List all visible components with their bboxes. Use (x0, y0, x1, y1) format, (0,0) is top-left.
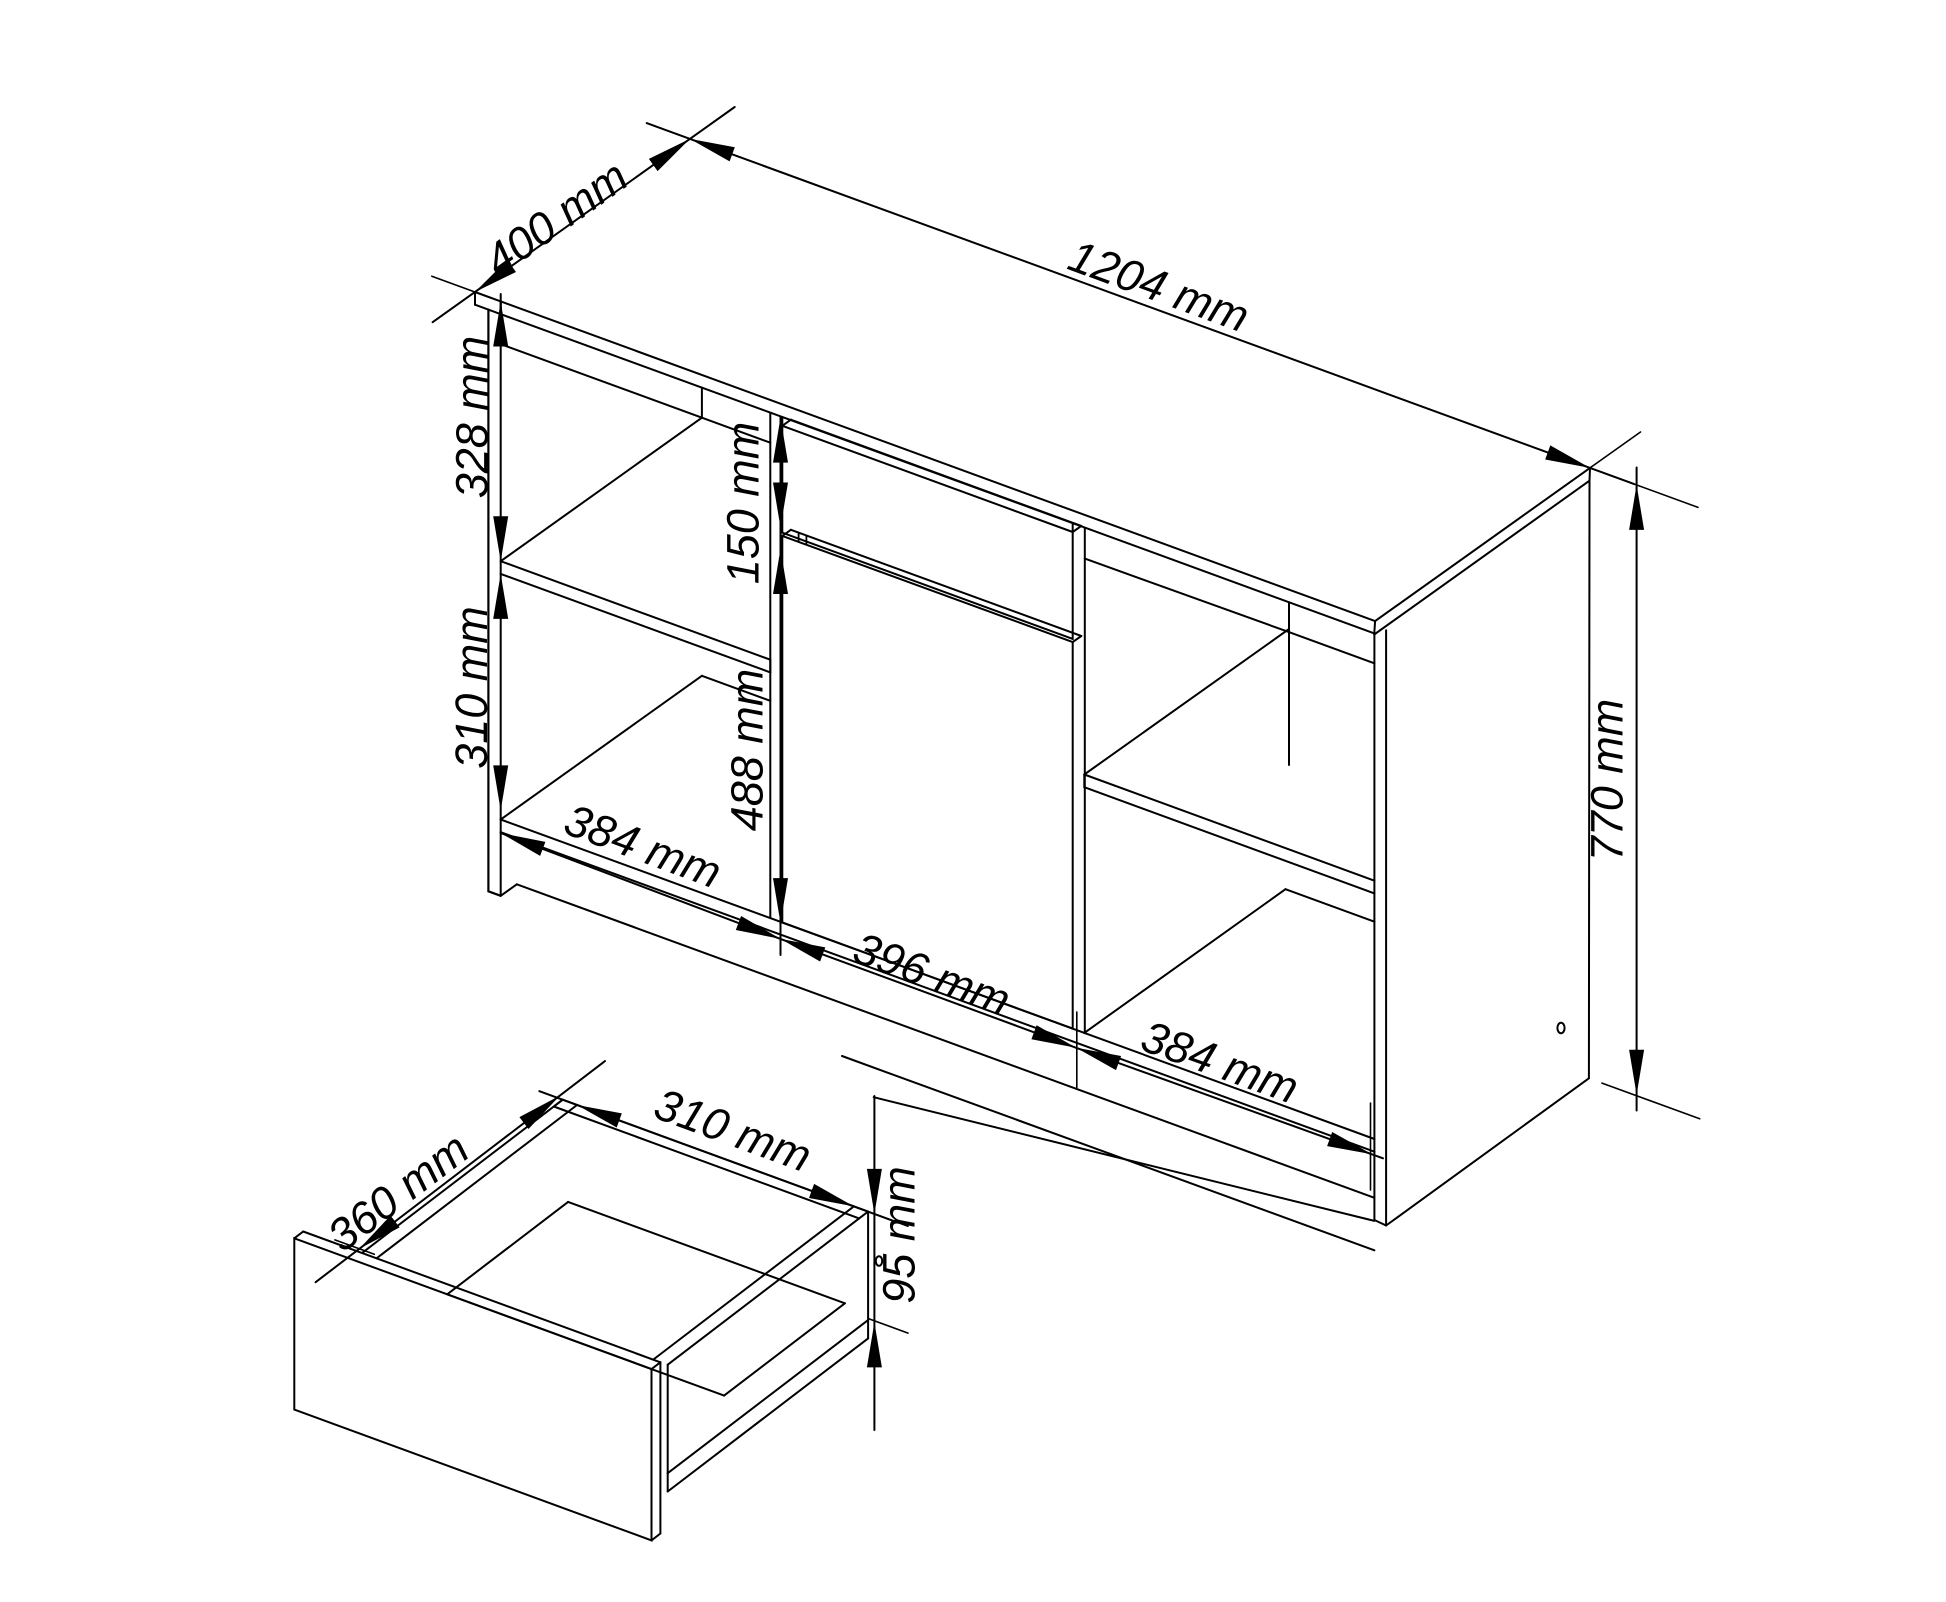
svg-text:770 mm: 770 mm (1582, 699, 1633, 862)
svg-text:95 mm: 95 mm (874, 1166, 925, 1304)
svg-text:310 mm: 310 mm (446, 606, 497, 769)
svg-text:328 mm: 328 mm (446, 336, 497, 499)
svg-text:488 mm: 488 mm (722, 669, 773, 832)
svg-text:150 mm: 150 mm (718, 422, 769, 585)
